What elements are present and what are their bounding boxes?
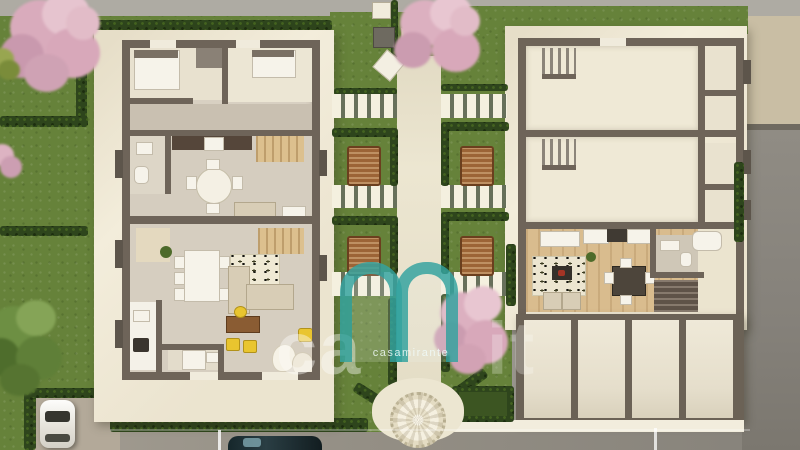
window-bump [115,150,123,178]
wardrobe [196,48,224,68]
garden-square [459,392,507,416]
walkway-stairs [332,94,397,118]
pink-tree [0,140,26,182]
small-room [705,96,736,130]
garage-bay [686,320,733,418]
wall [129,98,193,104]
wall [542,165,576,170]
green-tree [0,298,74,403]
dining-table [612,266,646,296]
stove [607,229,627,242]
armchair-yellow [226,338,240,351]
stair-indicator [542,139,576,165]
wall [122,40,130,380]
stove [133,338,149,352]
window-bump [743,60,751,84]
watermark-text-right: it [487,312,536,386]
patio-seating [460,236,494,276]
chair [174,256,185,269]
window-bump [743,150,751,174]
window-bump [319,255,327,281]
kitchen-counter [583,229,609,244]
window [150,40,176,48]
stairs-wood [256,136,304,162]
hedge [441,122,449,186]
walkway-stairs [441,94,507,118]
wall-unit-divider [122,216,320,224]
white-car-windshield [45,411,70,422]
armchair-yellow [243,340,257,353]
wall [650,229,656,275]
wall [518,38,744,46]
wall [518,130,744,137]
watermark-brand-text: casamirante [346,347,476,359]
rosette-paving [390,392,446,448]
wall [165,136,171,194]
chair [174,288,185,301]
dining-table-round [196,168,232,204]
wall [162,344,224,350]
small-room [705,46,736,90]
door-gap [236,40,260,48]
wall [222,46,228,104]
wall [218,344,224,372]
hedge [332,216,396,225]
patio-seating [460,146,494,186]
pink-tree [392,0,487,86]
dark-car-windshield [243,438,261,447]
chair [206,159,220,170]
shower [182,350,206,370]
sink [136,142,153,155]
hedge [332,128,396,137]
hedge [441,122,509,131]
armchair [543,292,562,310]
small-room [705,190,736,222]
stairs-dark [654,280,698,312]
chair [206,203,220,214]
desk-chair-yellow [234,306,247,318]
wall [650,272,704,278]
walkway-stairs [441,185,507,208]
stair-indicator [542,48,576,74]
toilet [134,166,149,184]
kitchen-sink [133,310,150,322]
garage-bay [578,320,625,418]
stove [204,137,224,151]
chair [620,295,632,305]
toilet [680,252,692,267]
hedge [0,116,88,127]
wall [156,300,162,372]
parking-line [218,430,221,450]
window-bump [115,240,123,268]
white-car-rear-window [45,434,70,442]
dining-table [184,250,220,302]
sink [660,240,680,251]
door-gap [600,38,626,46]
hedge [441,212,509,221]
window-bump [319,150,327,176]
wall [518,222,744,229]
chair [232,176,243,190]
neighbor-roof [746,16,800,128]
concrete-right-area [742,130,800,450]
garage-bay [632,320,679,418]
chair [604,272,614,284]
wall [129,130,314,136]
wall [518,38,526,320]
chair [186,176,197,190]
hall-floor [130,104,312,132]
window [190,372,218,380]
wall [542,74,576,79]
stairs-wood [258,228,304,254]
hedge [390,128,398,186]
window-bump [115,320,123,348]
garden-cube-white [372,2,391,19]
small-room [705,143,736,184]
hedge [0,226,88,236]
parking-line [654,428,657,450]
chair [620,258,632,268]
armchair [562,292,581,310]
site-plan-render: ca it casamirante [0,0,800,450]
plant-pot [586,252,596,262]
bathtub [692,231,722,251]
plant-pot [160,246,172,258]
window-bump [743,200,751,220]
wall [698,45,705,222]
desk [226,316,260,333]
bed-headboard [252,50,294,57]
patio-seating [347,146,381,186]
bed-headboard [134,50,178,58]
walkway-stairs [332,185,397,208]
green-tree [0,46,24,84]
decor-red [558,270,565,276]
chair [174,272,185,285]
sofa [540,231,580,247]
wall [698,90,744,96]
hedge [734,162,744,242]
